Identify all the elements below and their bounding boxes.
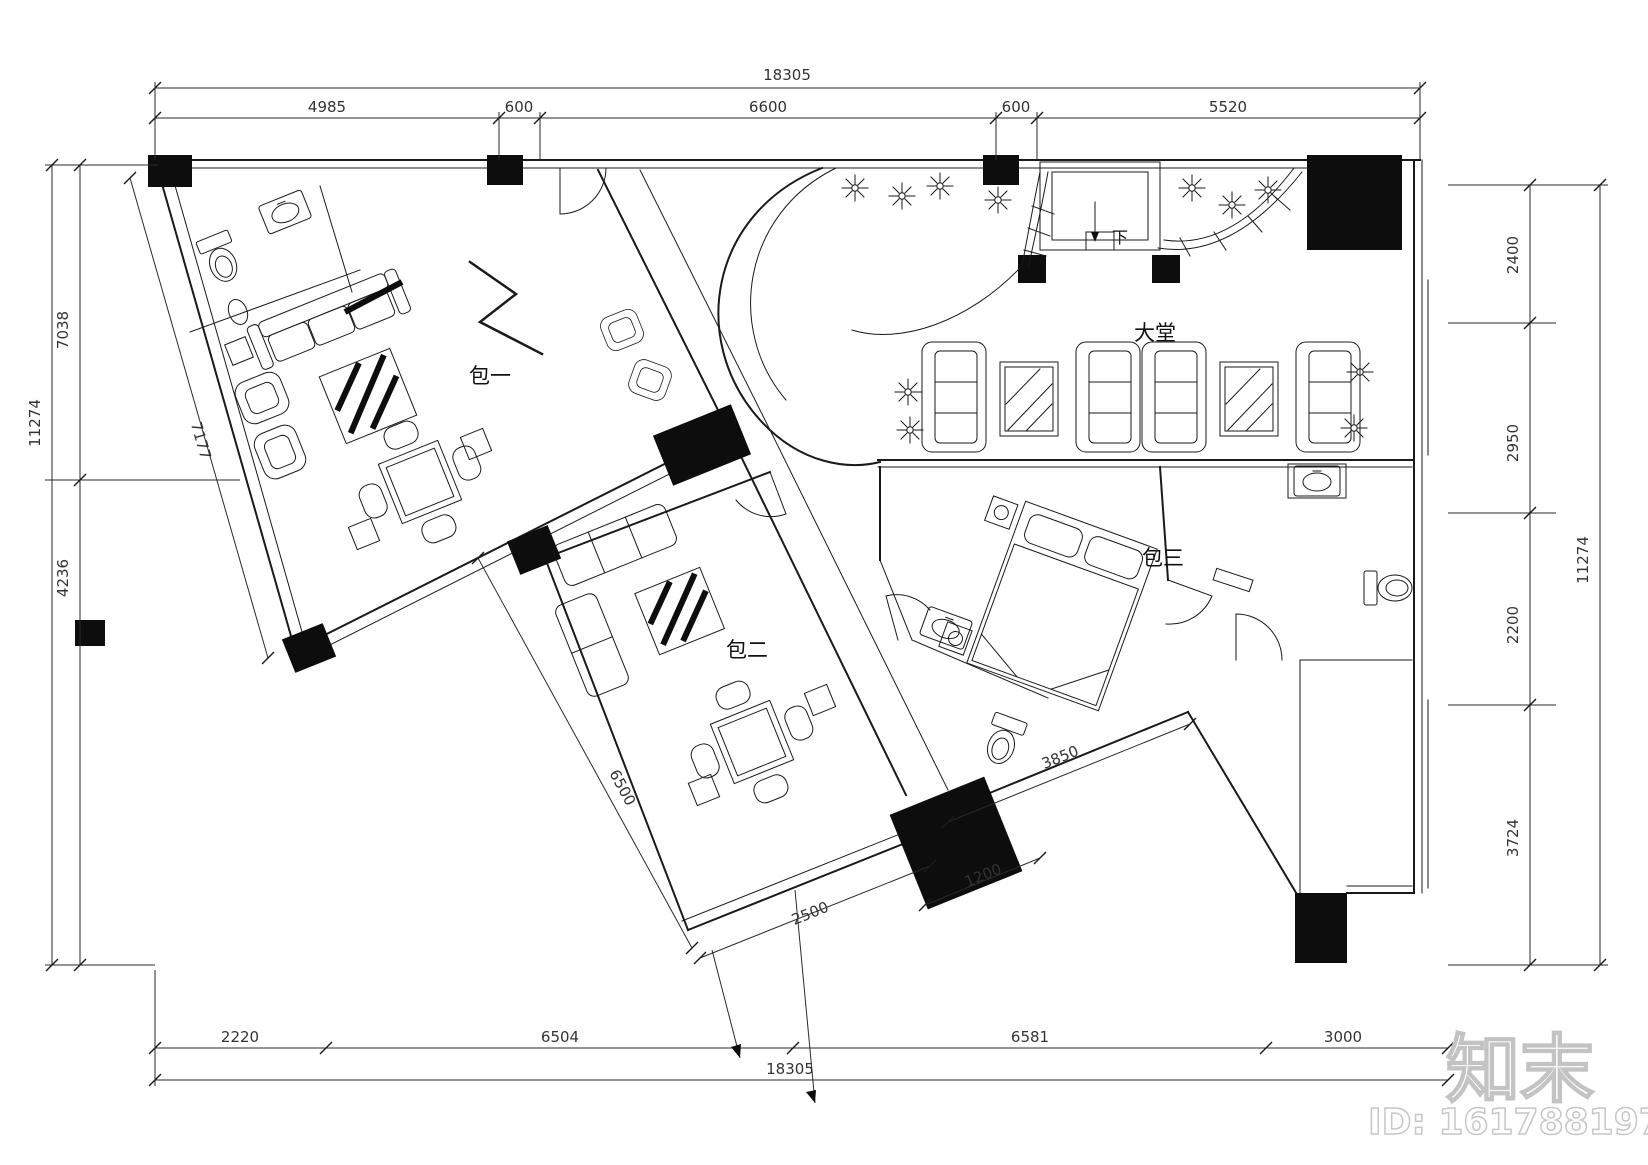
plant-icon [897, 417, 923, 443]
watermark-id: ID: 161788197 [1368, 1102, 1648, 1143]
sink-icon [258, 189, 312, 234]
armchair-icon [251, 422, 310, 483]
dimension-left: 11274 7038 4236 [26, 159, 240, 971]
watermark: 知末 ID: 161788197 [1368, 1027, 1648, 1143]
room1-rug [319, 348, 416, 443]
plant-icon [895, 379, 921, 405]
plant-icon [927, 173, 953, 199]
room3-label: 包三 [1142, 546, 1184, 570]
dim-right-4: 3724 [1504, 819, 1522, 857]
columns [75, 155, 1402, 963]
dim-top-overall: 18305 [763, 66, 811, 84]
floor-plan-page: 下 大堂 [0, 0, 1648, 1165]
chair-icon [598, 306, 647, 353]
dim-left-1: 7038 [54, 311, 72, 349]
plant-icon [1179, 175, 1205, 201]
floor-plan-canvas: 下 大堂 [0, 0, 1648, 1165]
dim-top-5: 5520 [1209, 98, 1247, 116]
dim-bot-overall: 18305 [766, 1060, 814, 1078]
sofa [922, 342, 986, 452]
bed-icon [967, 501, 1157, 711]
plant-icon [842, 175, 868, 201]
lobby-seating [922, 342, 1360, 452]
dim-room2-width: 2500 [789, 898, 831, 929]
dim-bot-1: 2220 [221, 1028, 259, 1046]
dimension-top: 18305 4985 600 6600 600 5520 [149, 66, 1426, 160]
plant-icon [1255, 177, 1281, 203]
room2: 包二 [551, 472, 835, 823]
dim-left-overall: 11274 [26, 399, 44, 447]
dim-left-2: 4236 [54, 559, 72, 597]
elevator-down-label: 下 [1112, 228, 1128, 247]
plant-icon [889, 183, 915, 209]
plant-icon [985, 187, 1011, 213]
dim-right-1: 2400 [1504, 236, 1522, 274]
dim-bot-4: 3000 [1324, 1028, 1362, 1046]
dim-top-3: 6600 [749, 98, 787, 116]
sofa [1076, 342, 1140, 452]
sofa [1296, 342, 1360, 452]
dim-top-4: 600 [1002, 98, 1031, 116]
door-arc [886, 595, 930, 640]
plant-icon [1341, 415, 1367, 441]
watermark-logo: 知末 [1446, 1027, 1594, 1113]
dim-top-2: 600 [505, 98, 534, 116]
plant-icon [1219, 192, 1245, 218]
toilet-icon [979, 712, 1027, 769]
dimension-right: 2400 2950 2200 3724 11274 [1448, 179, 1608, 971]
dim-bot-2: 6504 [541, 1028, 579, 1046]
bed-group [937, 490, 1157, 710]
elevator: 下 [1040, 162, 1160, 250]
door-arc [736, 472, 786, 517]
dim-room3-wall: 3850 [1039, 742, 1081, 773]
toilet-icon [196, 230, 246, 287]
dim-bot-3: 6581 [1011, 1028, 1049, 1046]
room3: 包三 [886, 464, 1412, 769]
coffee-table [1220, 362, 1278, 436]
lobby-label: 大堂 [1134, 321, 1176, 345]
toilet-icon [1364, 571, 1412, 605]
room1-sofa [246, 268, 412, 371]
dim-right-3: 2200 [1504, 606, 1522, 644]
dimension-interior: 6500 2500 1200 3850 7177 [124, 172, 1196, 964]
lobby: 下 大堂 [718, 162, 1373, 465]
dining-table [339, 401, 500, 562]
dim-right-2: 2950 [1504, 424, 1522, 462]
room1: 包一 [190, 168, 674, 563]
dim-top-1: 4985 [308, 98, 346, 116]
room2-label: 包二 [726, 638, 768, 662]
dim-angled-wall: 7177 [187, 420, 215, 462]
sofa [1142, 342, 1206, 452]
door-arc [560, 168, 606, 214]
coffee-table [1000, 362, 1058, 436]
room2-rug [635, 567, 725, 654]
room1-label: 包一 [469, 364, 511, 388]
dim-right-overall: 11274 [1574, 536, 1592, 584]
door-arc [1236, 614, 1282, 660]
armchair-icon [232, 369, 293, 428]
lobby-entry-arc [718, 168, 880, 465]
chair-icon [626, 357, 674, 403]
dining-table [671, 661, 832, 822]
door-arc [1166, 580, 1212, 624]
sink-icon [1294, 466, 1340, 496]
vanity-counter [1288, 464, 1346, 498]
